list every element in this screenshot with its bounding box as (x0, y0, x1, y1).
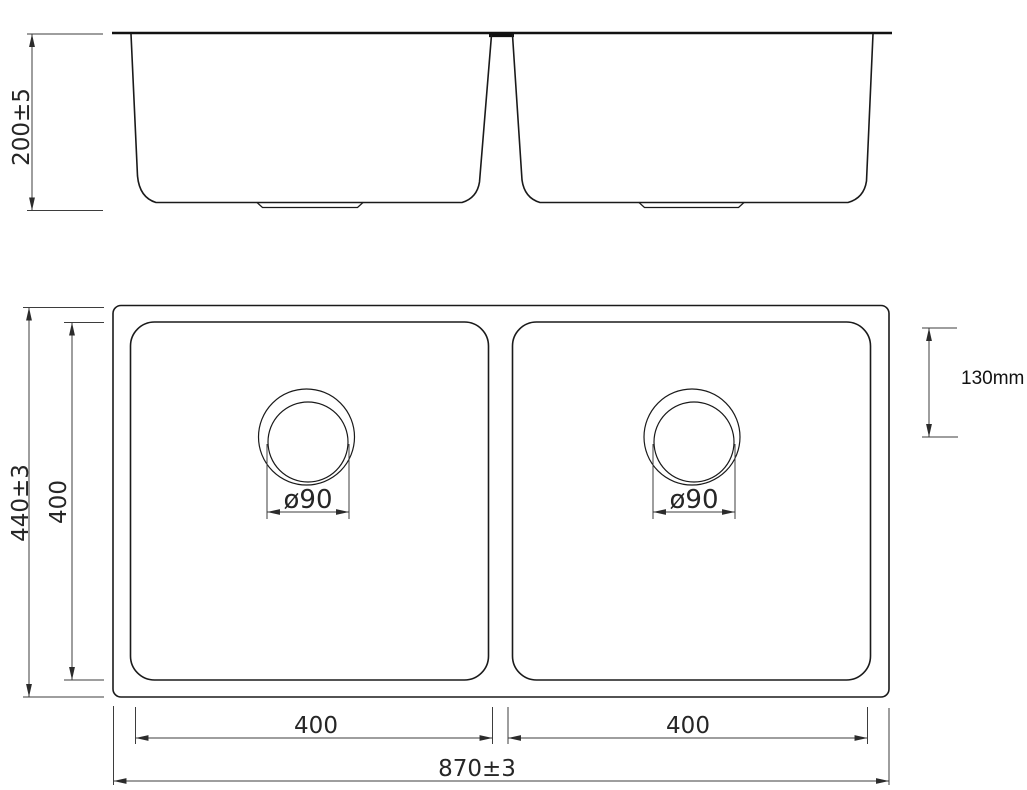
front-left-bowl-outline (131, 34, 492, 203)
plan-view (113, 306, 889, 698)
left-bowl-width-dimension: 400 (136, 707, 493, 744)
front-view (112, 33, 892, 208)
front-height-dim-text: 200±5 (9, 88, 35, 166)
plan-outer-rim (113, 306, 889, 698)
drawing-svg: 200±5 ø90 ø90 440±3 (0, 0, 1027, 790)
plan-left-drain-outer (259, 389, 355, 485)
plan-right-drain-outer (644, 389, 740, 485)
bowl-depth-dimension: 400 (46, 323, 104, 681)
drain-offset-dim-text: 130mm (961, 368, 1024, 389)
right-bowl-width-dimension: 400 (508, 707, 868, 744)
sink-technical-drawing: 200±5 ø90 ø90 440±3 (0, 0, 1027, 790)
overall-width-dimension: 870±3 (114, 706, 890, 785)
front-height-dimension: 200±5 (9, 34, 103, 211)
overall-depth-dim-text: 440±3 (8, 464, 34, 542)
bowl-depth-dim-text: 400 (46, 480, 72, 524)
left-bowl-width-dim-text: 400 (294, 713, 338, 739)
front-right-bowl-outline (513, 34, 874, 203)
left-drain-dim-text: ø90 (284, 485, 333, 515)
right-bowl-width-dim-text: 400 (666, 713, 710, 739)
right-drain-dim-text: ø90 (670, 485, 719, 515)
overall-width-dim-text: 870±3 (438, 756, 516, 782)
plan-right-drain-inner (654, 402, 734, 482)
plan-left-drain-inner (268, 402, 348, 482)
drain-offset-dimension: 130mm (922, 328, 1024, 437)
